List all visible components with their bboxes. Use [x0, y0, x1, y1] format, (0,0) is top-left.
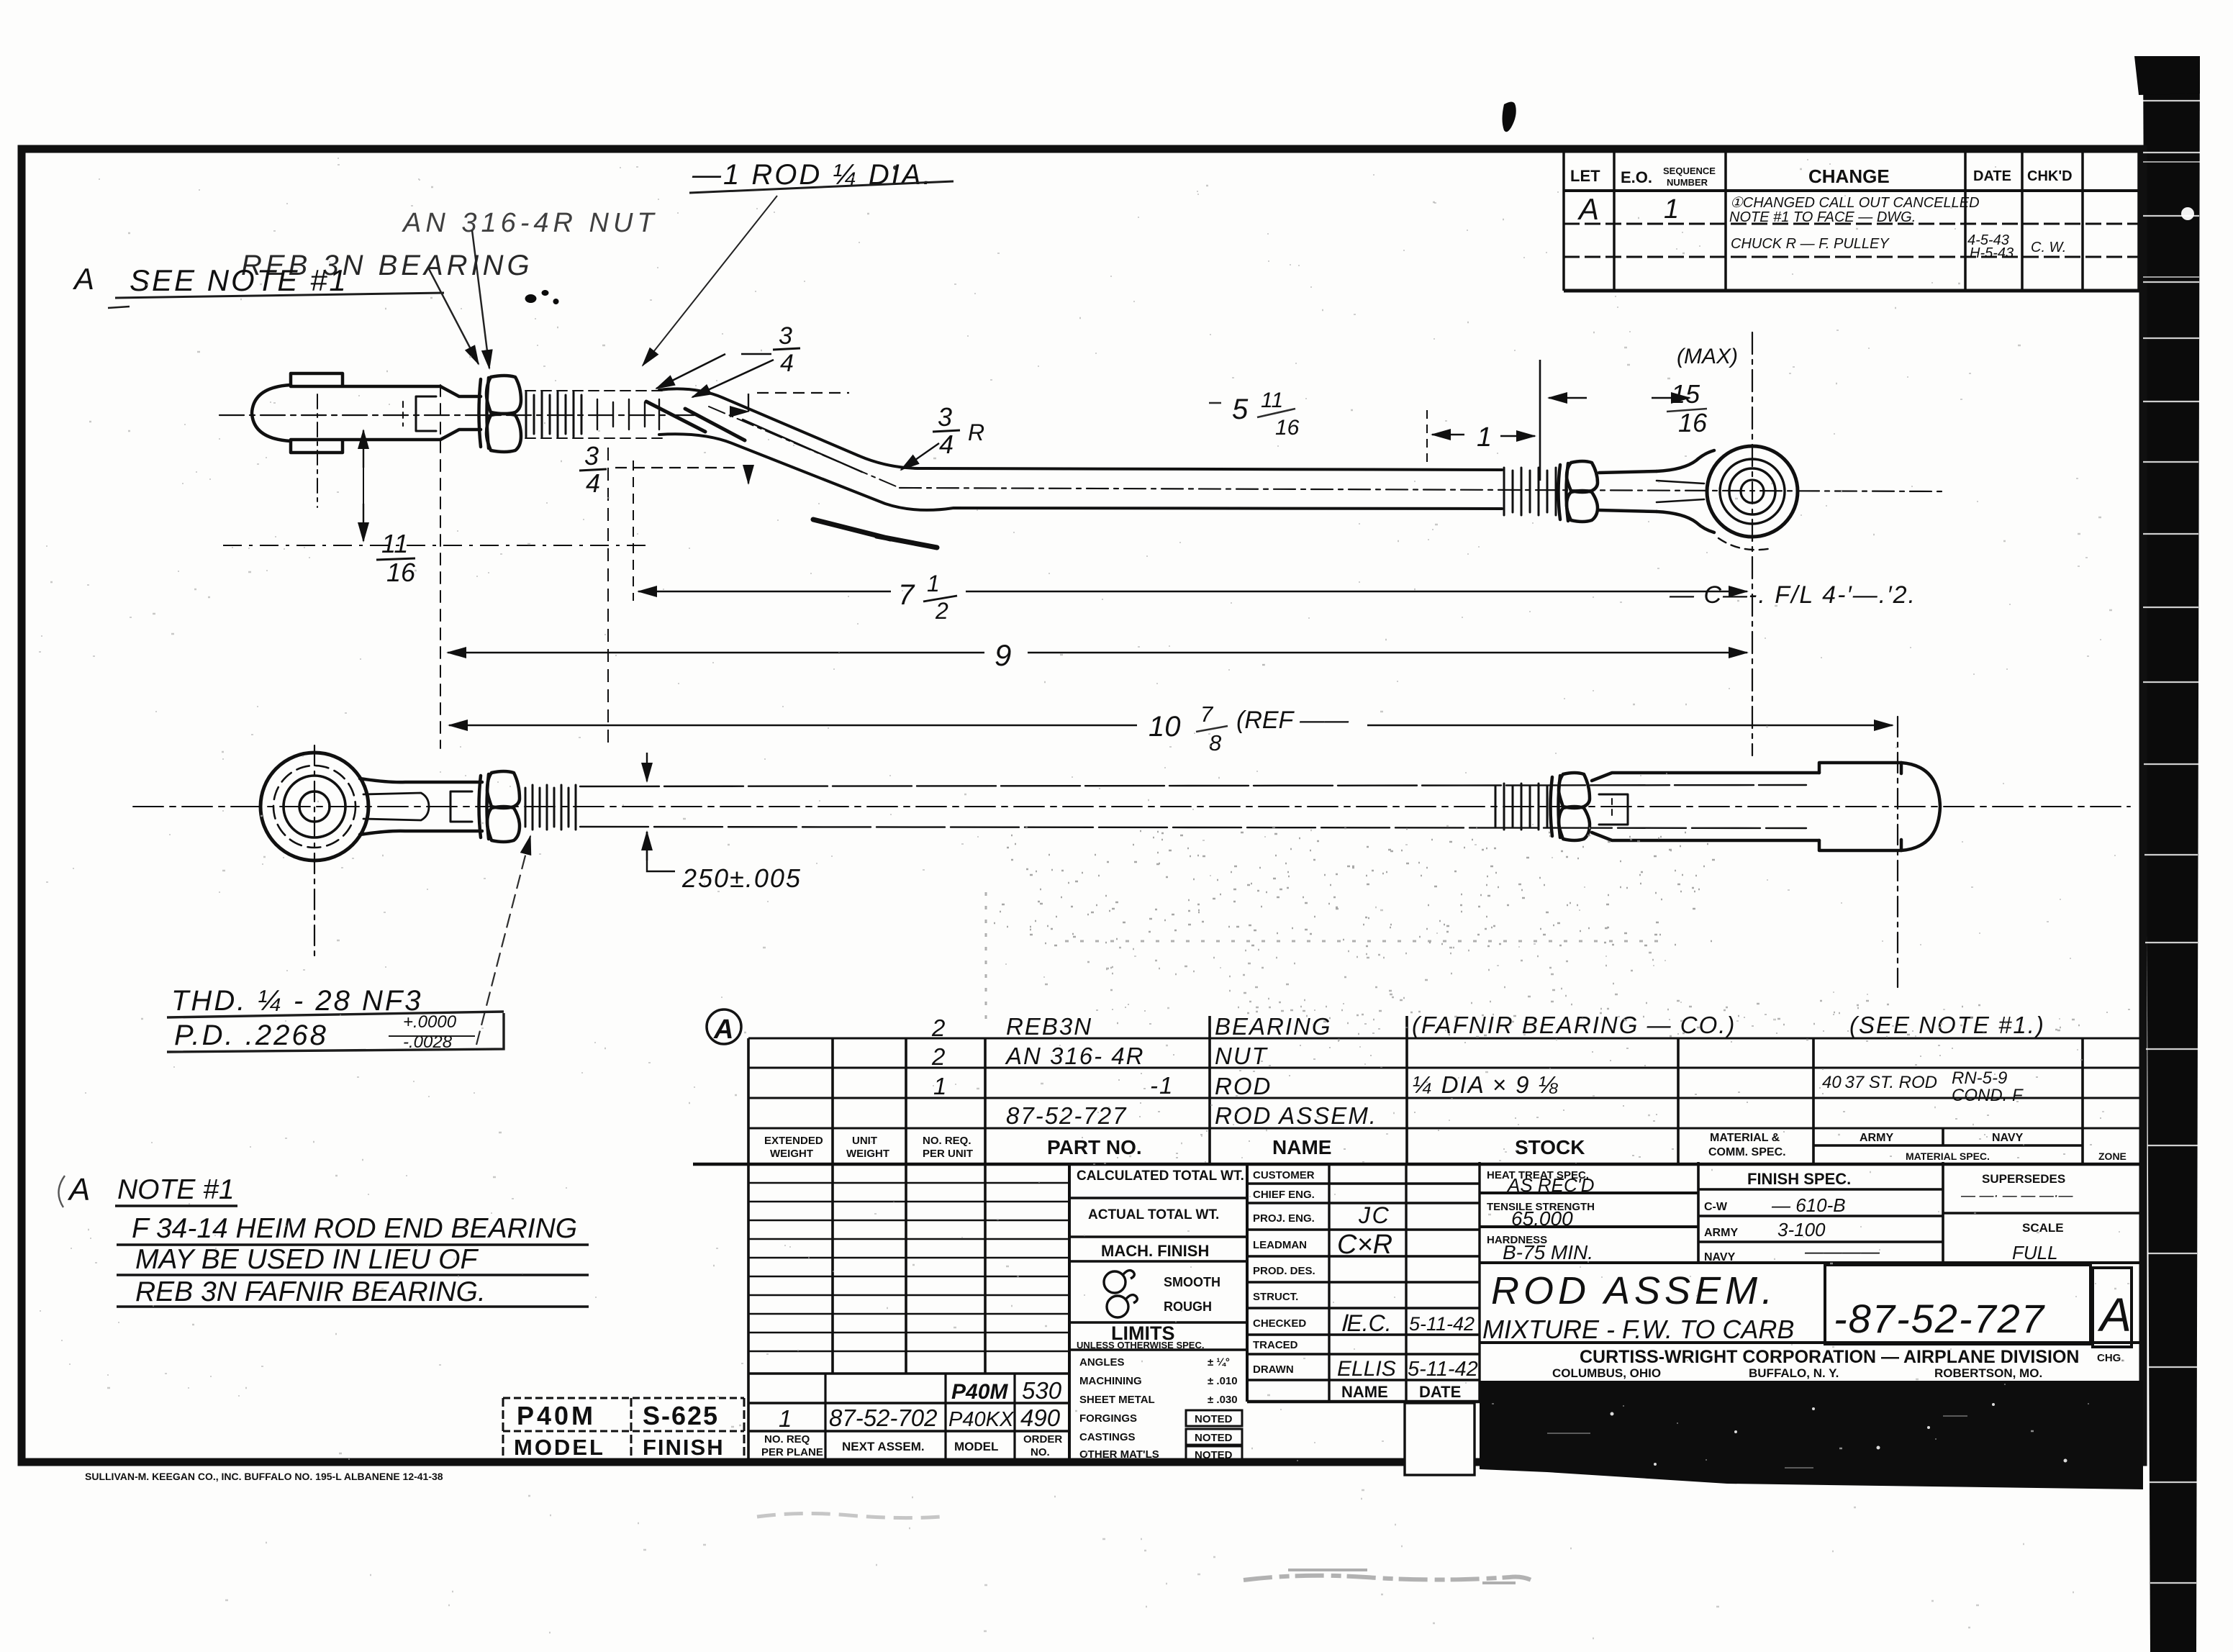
svg-text:530: 530 [1022, 1377, 1062, 1404]
svg-text:TRACED: TRACED [1253, 1339, 1298, 1351]
svg-text:ROBERTSON, MO.: ROBERTSON, MO. [1934, 1366, 2042, 1380]
svg-text:CASTINGS: CASTINGS [1079, 1431, 1136, 1443]
svg-text:11: 11 [1261, 389, 1283, 412]
svg-text:THD. ¼ - 28 NF3: THD. ¼ - 28 NF3 [171, 985, 423, 1017]
svg-text:A: A [2097, 1288, 2132, 1341]
svg-text:SMOOTH: SMOOTH [1164, 1275, 1220, 1289]
svg-text:± .010: ± .010 [1208, 1375, 1238, 1387]
svg-text:PROJ. ENG.: PROJ. ENG. [1253, 1212, 1315, 1225]
svg-text:NOTED: NOTED [1195, 1432, 1233, 1444]
svg-text:10: 10 [1149, 711, 1181, 743]
svg-text:250±.005: 250±.005 [681, 863, 802, 893]
svg-text:MODEL: MODEL [954, 1440, 998, 1453]
svg-text:3: 3 [584, 441, 599, 471]
svg-text:OTHER MAT'LS: OTHER MAT'LS [1079, 1448, 1159, 1461]
svg-text:————: ———— [1804, 1240, 1880, 1262]
svg-text:J C: J C [1358, 1202, 1390, 1228]
svg-text:¼ DIA × 9 ⅛: ¼ DIA × 9 ⅛ [1412, 1071, 1559, 1098]
svg-text:STOCK: STOCK [1515, 1136, 1585, 1158]
svg-text:NAME: NAME [1272, 1136, 1331, 1158]
svg-text:UNLESS OTHERWISE SPEC.: UNLESS OTHERWISE SPEC. [1077, 1340, 1204, 1351]
svg-text:7: 7 [898, 579, 915, 611]
svg-text:ARMY: ARMY [1704, 1227, 1738, 1239]
svg-text:CHANGE: CHANGE [1808, 165, 1890, 187]
svg-text:(MAX): (MAX) [1677, 345, 1738, 368]
svg-text:WEIGHT: WEIGHT [846, 1148, 889, 1160]
svg-text:— 610-B: — 610-B [1771, 1194, 1846, 1216]
svg-text:SULLIVAN-M. KEEGAN CO., INC.: SULLIVAN-M. KEEGAN CO., INC. BUFFALO NO.… [85, 1471, 443, 1482]
svg-text:± .030: ± .030 [1208, 1394, 1238, 1406]
svg-text:A: A [67, 1172, 90, 1207]
svg-text:P40KX: P40KX [948, 1408, 1015, 1431]
svg-text:C×R: C×R [1337, 1230, 1392, 1260]
svg-text:MATERIAL &: MATERIAL & [1710, 1132, 1780, 1144]
svg-text:LEADMAN: LEADMAN [1253, 1239, 1307, 1251]
svg-text:FINISH SPEC.: FINISH SPEC. [1747, 1170, 1851, 1188]
svg-text:3: 3 [938, 402, 952, 432]
svg-text:NUMBER: NUMBER [1667, 177, 1708, 188]
svg-text:NOTED: NOTED [1195, 1413, 1233, 1425]
svg-text:(REF ——: (REF —— [1236, 707, 1349, 734]
svg-text:MODEL: MODEL [514, 1435, 605, 1460]
svg-text:REB 3N FAFNIR BEARING.: REB 3N FAFNIR BEARING. [135, 1276, 486, 1307]
svg-text:2: 2 [931, 1015, 946, 1041]
svg-text:11: 11 [381, 529, 408, 558]
svg-text:EXTENDED: EXTENDED [764, 1135, 823, 1147]
svg-text:P40M: P40M [517, 1401, 596, 1430]
svg-text:FORGINGS: FORGINGS [1079, 1412, 1137, 1425]
svg-text:5-11-42: 5-11-42 [1409, 1313, 1475, 1335]
svg-text:REB3N: REB3N [1006, 1013, 1092, 1040]
svg-text:CHK'D: CHK'D [2027, 168, 2073, 184]
svg-text:8: 8 [1209, 730, 1222, 755]
svg-text:NO. REQ.: NO. REQ. [923, 1135, 971, 1147]
svg-text:FINISH: FINISH [643, 1435, 725, 1460]
svg-text:ORDER: ORDER [1023, 1433, 1062, 1445]
svg-text:ZONE: ZONE [2098, 1150, 2126, 1162]
svg-text:2: 2 [931, 1043, 946, 1070]
svg-text:3: 3 [779, 322, 792, 350]
svg-text:SUPERSEDES: SUPERSEDES [1982, 1172, 2065, 1186]
svg-text:C. W.: C. W. [2031, 240, 2066, 255]
svg-text:PER UNIT: PER UNIT [923, 1148, 973, 1160]
svg-text:COND. F: COND. F [1952, 1086, 2024, 1105]
svg-text:— C—‐. F/L 4-′—.′2.: — C—‐. F/L 4-′—.′2. [1669, 581, 1916, 609]
svg-text:NAVY: NAVY [1704, 1251, 1736, 1263]
svg-text:BEARING: BEARING [1215, 1013, 1332, 1040]
svg-text:4: 4 [586, 468, 600, 498]
svg-text:FULL: FULL [2012, 1242, 2058, 1263]
svg-text:S-625: S-625 [643, 1401, 719, 1430]
svg-text:AN 316-4R NUT: AN 316-4R NUT [402, 208, 658, 238]
svg-text:AN 316- 4R: AN 316- 4R [1005, 1043, 1144, 1069]
svg-text:DATE: DATE [1973, 168, 2011, 184]
svg-text:SCALE: SCALE [2022, 1221, 2064, 1235]
svg-text:ARMY: ARMY [1860, 1132, 1893, 1144]
svg-text:A: A [72, 262, 94, 296]
svg-text:ROUGH: ROUGH [1164, 1299, 1212, 1314]
svg-text:5-11-42: 5-11-42 [1408, 1358, 1478, 1381]
svg-text:MACH. FINISH: MACH. FINISH [1101, 1242, 1209, 1260]
svg-text:BUFFALO, N. Y.: BUFFALO, N. Y. [1749, 1366, 1839, 1380]
svg-text:CHECKED: CHECKED [1253, 1317, 1306, 1330]
svg-text:COLUMBUS, OHIO: COLUMBUS, OHIO [1552, 1366, 1661, 1380]
svg-text:AS REC'D: AS REC'D [1506, 1174, 1595, 1196]
svg-text:ROD ASSEM.: ROD ASSEM. [1491, 1269, 1777, 1312]
svg-text:SEE NOTE #1: SEE NOTE #1 [130, 263, 348, 297]
svg-text:1: 1 [933, 1073, 948, 1099]
svg-text:16: 16 [386, 558, 416, 587]
svg-text:NAVY: NAVY [1992, 1132, 2024, 1144]
svg-text:STRUCT.: STRUCT. [1253, 1291, 1298, 1303]
svg-text:LET: LET [1570, 167, 1600, 185]
svg-text:1: 1 [927, 571, 940, 596]
svg-text:A: A [1577, 192, 1599, 226]
svg-text:P40M: P40M [951, 1380, 1008, 1404]
svg-text:P.D. .2268: P.D. .2268 [174, 1020, 328, 1051]
svg-text:B-75 MIN.: B-75 MIN. [1503, 1241, 1593, 1263]
svg-text:E.O.: E.O. [1621, 168, 1652, 186]
svg-text:15: 15 [1671, 379, 1700, 409]
svg-text:1: 1 [1477, 422, 1492, 453]
svg-text:DATE: DATE [1419, 1383, 1461, 1401]
svg-text:PART NO.: PART NO. [1047, 1136, 1142, 1158]
svg-text:NO.: NO. [1031, 1446, 1050, 1458]
svg-text:490: 490 [1020, 1404, 1061, 1431]
svg-text:NOTED: NOTED [1195, 1449, 1233, 1461]
svg-text:-87-52-727: -87-52-727 [1834, 1296, 2045, 1341]
svg-text:—1 ROD ¼ DIA.: —1 ROD ¼ DIA. [692, 159, 933, 191]
svg-text:NUT: NUT [1215, 1043, 1269, 1069]
svg-text:ROD: ROD [1215, 1073, 1272, 1099]
svg-text:MAY BE USED IN LIEU OF: MAY BE USED IN LIEU OF [135, 1244, 479, 1275]
svg-text:4: 4 [939, 430, 954, 459]
svg-text:65,000: 65,000 [1511, 1207, 1573, 1230]
svg-text:CUSTOMER: CUSTOMER [1253, 1169, 1315, 1181]
svg-text:(SEE NOTE #1.): (SEE NOTE #1.) [1849, 1012, 2045, 1038]
svg-text:F 34-14 HEIM ROD END BEARI: F 34-14 HEIM ROD END BEARING [132, 1213, 577, 1244]
svg-text:87-52-727: 87-52-727 [1006, 1102, 1127, 1129]
svg-text:3-100: 3-100 [1777, 1219, 1826, 1240]
svg-text:NOTE #1: NOTE #1 [117, 1174, 235, 1205]
svg-text:MATERIAL SPEC.: MATERIAL SPEC. [1906, 1150, 1990, 1162]
svg-text:2: 2 [935, 598, 948, 624]
svg-text:PROD. DES.: PROD. DES. [1253, 1265, 1315, 1277]
svg-text:MACHINING: MACHINING [1079, 1375, 1142, 1387]
svg-text:①CHANGED CALL OUT CANCELLED: ①CHANGED CALL OUT CANCELLED [1730, 195, 1980, 211]
svg-text:R: R [968, 419, 984, 445]
svg-text:SEQUENCE: SEQUENCE [1663, 165, 1716, 176]
svg-text:MIXTURE - F.W. TO CARB: MIXTURE - F.W. TO CARB [1482, 1315, 1794, 1344]
svg-text:DRAWN: DRAWN [1253, 1363, 1294, 1376]
svg-text:ANGLES: ANGLES [1079, 1356, 1125, 1369]
svg-text:4: 4 [780, 350, 794, 377]
svg-text:+.0000: +.0000 [403, 1012, 457, 1032]
svg-text:WEIGHT: WEIGHT [770, 1148, 813, 1160]
svg-text:CURTISS-WRIGHT CORPORATION — A: CURTISS-WRIGHT CORPORATION — AIRPLANE DI… [1580, 1347, 2079, 1367]
svg-text:CHG.: CHG. [2097, 1352, 2124, 1364]
svg-text:— —· — — —·—: — —· — — —·— [1960, 1188, 2074, 1204]
svg-text:CALCULATED TOTAL WT.: CALCULATED TOTAL WT. [1077, 1168, 1244, 1184]
svg-text:5: 5 [1232, 394, 1249, 425]
svg-text:-1: -1 [1150, 1072, 1174, 1099]
svg-text:ROD ASSEM.: ROD ASSEM. [1215, 1102, 1377, 1129]
svg-text:CHIEF ENG.: CHIEF ENG. [1253, 1189, 1315, 1201]
svg-text:NEXT ASSEM.: NEXT ASSEM. [842, 1440, 925, 1453]
svg-text:COMM. SPEC.: COMM. SPEC. [1708, 1146, 1786, 1158]
svg-text:PER PLANE: PER PLANE [761, 1446, 823, 1458]
svg-text:87-52-702: 87-52-702 [829, 1404, 937, 1431]
svg-text:UNIT: UNIT [852, 1135, 877, 1147]
svg-text:16: 16 [1275, 416, 1300, 440]
svg-text:40 37 ST. ROD: 40 37 ST. ROD [1822, 1073, 1937, 1092]
svg-text:NOTE #1 TO FACE — DWG.: NOTE #1 TO FACE — DWG. [1729, 209, 1916, 225]
svg-text:ⅠE.C.: ⅠE.C. [1340, 1310, 1392, 1336]
svg-text:(FAFNIR BEARING — CO.): (FAFNIR BEARING — CO.) [1412, 1012, 1736, 1038]
svg-text:A: A [713, 1015, 733, 1045]
svg-text:16: 16 [1678, 408, 1708, 437]
svg-text:9: 9 [995, 638, 1011, 672]
svg-text:RN-5-9: RN-5-9 [1952, 1068, 2007, 1088]
svg-text:SHEET METAL: SHEET METAL [1079, 1394, 1155, 1406]
svg-text:ELLIS: ELLIS [1337, 1357, 1396, 1381]
svg-text:1: 1 [779, 1405, 792, 1432]
svg-text:H-5-43: H-5-43 [1970, 245, 2014, 261]
svg-text:ACTUAL TOTAL WT.: ACTUAL TOTAL WT. [1088, 1207, 1219, 1222]
svg-text:7: 7 [1200, 702, 1214, 727]
svg-text:1: 1 [1664, 194, 1679, 224]
svg-text:± ¼°: ± ¼° [1208, 1356, 1230, 1369]
svg-text:NAME: NAME [1341, 1383, 1388, 1401]
svg-text:NO. REQ: NO. REQ [764, 1433, 810, 1445]
svg-text:C-W: C-W [1704, 1201, 1728, 1213]
